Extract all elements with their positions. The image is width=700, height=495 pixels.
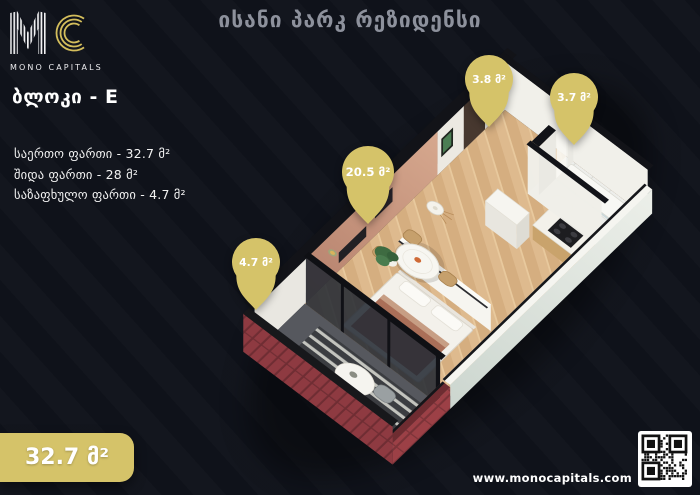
area-pin-label: 3.8 მ² xyxy=(472,73,506,86)
area-pin-label: 4.7 მ² xyxy=(239,256,273,269)
qr-code xyxy=(638,431,692,487)
area-pin-label: 20.5 მ² xyxy=(346,165,391,179)
total-area-badge: 32.7 მ² xyxy=(0,433,134,482)
page-root: { "brand": { "monogram": "MC", "name": "… xyxy=(0,0,700,495)
floorplan-3d: 3.8 მ²3.7 მ²20.5 მ²4.7 მ² xyxy=(0,0,700,495)
website-link[interactable]: www.monocapitals.com xyxy=(473,471,632,485)
total-area-value: 32.7 მ² xyxy=(25,445,109,470)
area-pin-label: 3.7 მ² xyxy=(557,91,591,104)
